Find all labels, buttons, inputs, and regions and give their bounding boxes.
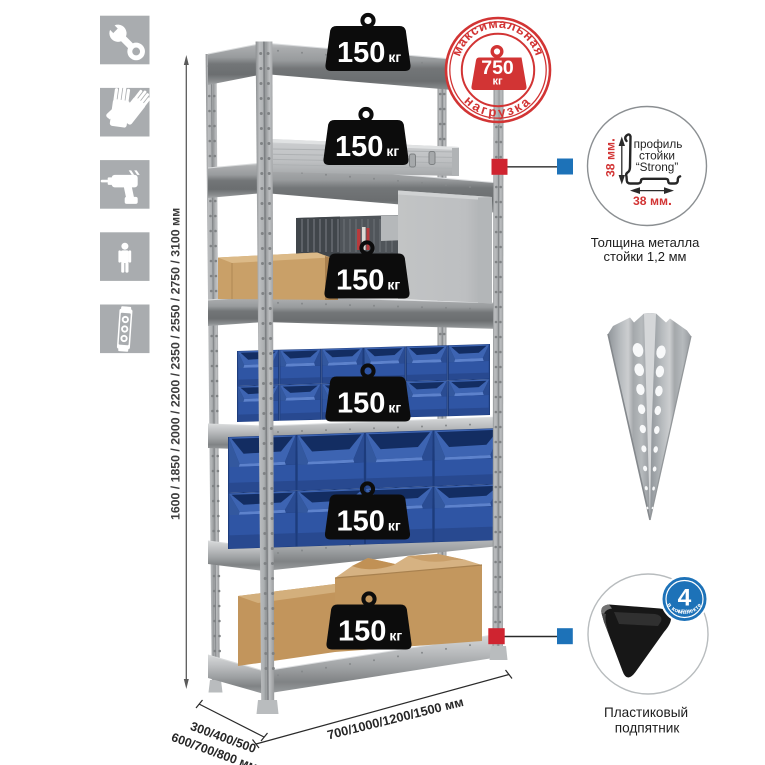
svg-text:“Strong”: “Strong” <box>636 160 679 174</box>
svg-text:700/1000/1200/1500 мм: 700/1000/1200/1500 мм <box>326 694 465 742</box>
svg-text:стойки 1,2 мм: стойки 1,2 мм <box>604 249 687 264</box>
svg-text:1600 / 1850 / 2000 / 2200 / 23: 1600 / 1850 / 2000 / 2200 / 2350 / 2550 … <box>169 208 183 520</box>
svg-text:38 мм.: 38 мм. <box>633 192 672 208</box>
svg-text:Пластиковый: Пластиковый <box>604 705 688 720</box>
svg-text:Толщина металла: Толщина металла <box>591 235 700 250</box>
svg-text:подпятник: подпятник <box>615 721 681 736</box>
svg-text:38 мм.: 38 мм. <box>602 138 618 177</box>
svg-text:4: 4 <box>678 585 692 612</box>
svg-text:кг: кг <box>492 76 503 88</box>
